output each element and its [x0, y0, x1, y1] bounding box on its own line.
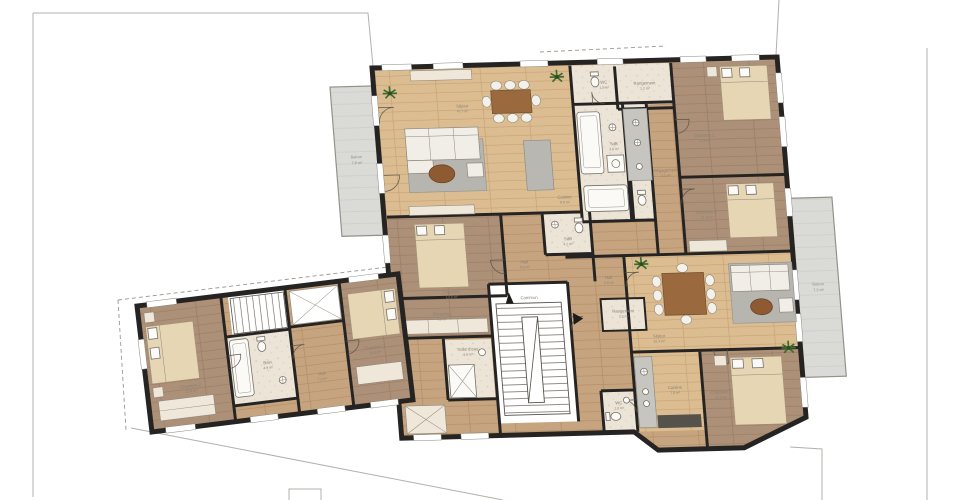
room-label: Dégagement [653, 167, 679, 173]
room-label: Cuisine [668, 385, 683, 390]
left-wing: Chambre 2 12.9 m² Bain 4.9 m² Hall 7.2 m… [134, 271, 414, 435]
toilet-icon [638, 195, 647, 205]
room-label: Hall [520, 259, 528, 264]
pillow [386, 308, 396, 320]
window [413, 434, 441, 441]
site-boundary-line [33, 13, 373, 66]
sink-icon [636, 163, 642, 169]
room-label: Chambre 1 [710, 389, 732, 395]
room-label: Balcon [812, 282, 824, 286]
room-label: Hall [605, 275, 613, 280]
room-label: Séjour [653, 333, 666, 338]
room-label: SdB [610, 141, 619, 146]
pillow [732, 359, 744, 368]
sink-icon [478, 349, 485, 356]
room-label: 5.6 m² [604, 281, 615, 285]
site-annex-outline [289, 489, 321, 500]
toilet-icon [637, 190, 645, 194]
chair [504, 81, 516, 90]
nightstand [144, 312, 155, 323]
chair [493, 114, 505, 123]
room-label: Rangement [612, 308, 635, 314]
pillow [739, 68, 750, 77]
room-label: Dressing [433, 311, 451, 316]
chair [681, 315, 693, 324]
floor-plan-page: Balcon 7.8 m² Balcon 7.3 m² [0, 0, 960, 500]
room-label: 1.8 m² [614, 406, 625, 410]
room-label: 4.1 m² [661, 174, 672, 178]
pillow [384, 291, 394, 303]
room-label: 4.2 m² [563, 242, 574, 246]
dining-table [491, 90, 532, 114]
chair [507, 113, 519, 122]
wing-closet [289, 285, 341, 324]
room-label: 32.4 m² [653, 339, 666, 343]
pillow [150, 347, 160, 359]
chair [490, 81, 502, 90]
toilet-icon [575, 223, 584, 233]
toilet-icon [590, 72, 598, 76]
site-boundary-line [790, 447, 822, 500]
room-label: 13.5 m² [446, 295, 459, 299]
tv-bench [409, 205, 475, 216]
room-label: Chambre [442, 289, 460, 294]
pillow [148, 328, 158, 340]
room-label: SdB [564, 236, 573, 241]
toilet-icon [574, 218, 582, 222]
toilet-icon [611, 412, 622, 420]
roof-dashed-line [118, 300, 126, 430]
sideboard [410, 69, 472, 81]
room-wc-c [601, 390, 638, 433]
pillow [416, 226, 427, 235]
sofa [405, 127, 481, 161]
washer-icon [607, 155, 625, 172]
toilet-icon [257, 336, 265, 341]
room-label: Commun [520, 295, 538, 300]
room-label: Chambre 2 [696, 209, 718, 215]
room-label: 3.2 m² [619, 314, 630, 318]
room-label: 12.2 m² [715, 395, 728, 399]
room-label: 1.5 m² [599, 85, 610, 89]
pillow [722, 68, 733, 77]
room-sdb-b [542, 212, 593, 255]
window [597, 58, 623, 65]
window [731, 55, 759, 62]
window [382, 64, 412, 71]
pillow [728, 186, 739, 195]
room-label: 11.9 m² [701, 215, 714, 219]
room-label: Séjour [456, 103, 469, 108]
room-label: 6.8 m² [520, 265, 531, 269]
room-label: Salle d'eau [457, 346, 479, 352]
stove-burner-icon [643, 401, 649, 407]
wing-stairs [230, 292, 287, 334]
window [680, 56, 706, 63]
armchair [467, 163, 484, 177]
stove-burner-icon [642, 389, 648, 395]
roof-dashed-line [540, 46, 666, 52]
room-label: WC [600, 80, 607, 85]
room-label: Balcon [351, 155, 363, 159]
room-label: Hall [318, 371, 326, 377]
window [520, 60, 548, 67]
site-boundary-line [776, 0, 779, 55]
stair-treads [230, 292, 287, 334]
room-label: WC [615, 400, 622, 405]
pillow [752, 359, 764, 368]
dining-table [662, 272, 707, 315]
pillow [746, 185, 757, 194]
pillow [434, 226, 445, 235]
nightstand [153, 387, 164, 398]
window [433, 63, 463, 70]
room-label: 1.2 m² [640, 86, 651, 90]
room-label: 9.8 m² [560, 200, 571, 204]
chair [521, 113, 533, 122]
toilet-icon [606, 413, 611, 421]
toilet-icon [591, 77, 600, 87]
sofa [730, 264, 789, 291]
floor-plan-canvas: Balcon 7.8 m² Balcon 7.3 m² [0, 0, 960, 500]
chair [676, 263, 688, 272]
kitchen-appliance-block [657, 414, 702, 428]
kitchen-island [523, 140, 554, 190]
room-label: 7.8 m² [670, 391, 681, 395]
room-label: Cuisine [557, 194, 572, 199]
room-label: 7.3 m² [813, 288, 825, 292]
bathtub-icon [577, 112, 605, 174]
sink-icon [623, 397, 629, 403]
room-label: 4.6 m² [437, 317, 448, 321]
room-label: 47.7 m² [457, 109, 470, 113]
nightstand [714, 356, 727, 366]
armchair [779, 298, 794, 312]
nightstand [707, 67, 718, 77]
room-label: 7.8 m² [351, 161, 363, 165]
room-label: 3.8 m² [609, 147, 620, 151]
room-label: Chambre 1 [693, 132, 715, 138]
window [461, 433, 489, 440]
room-label: 4.8 m² [463, 352, 474, 356]
room-label: 12.8 m² [699, 139, 712, 143]
chair [518, 80, 530, 89]
wardrobe [689, 240, 727, 252]
room-label: Rangement [633, 80, 656, 86]
